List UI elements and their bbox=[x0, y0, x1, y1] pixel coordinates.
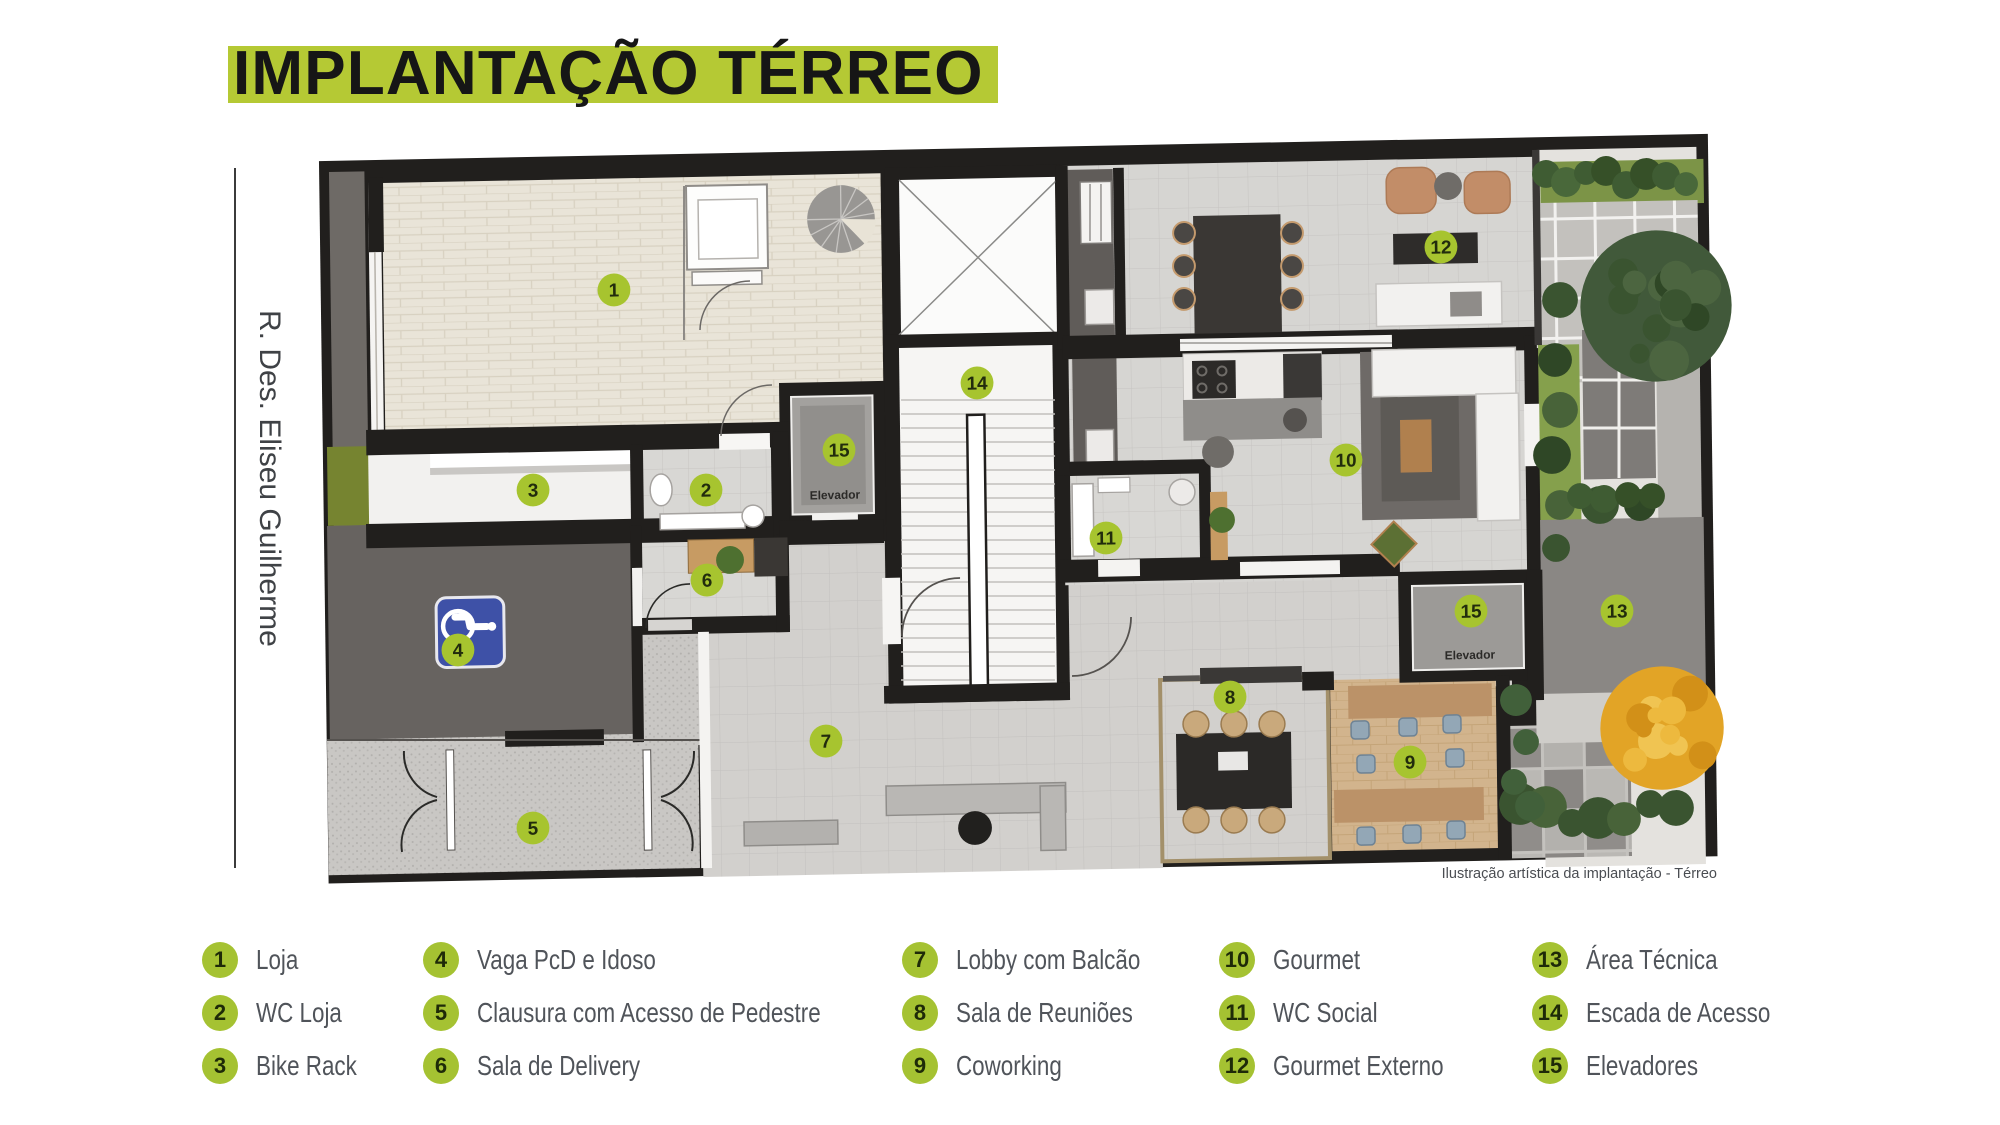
svg-text:3: 3 bbox=[528, 481, 539, 502]
svg-text:1: 1 bbox=[609, 280, 620, 301]
svg-text:14: 14 bbox=[966, 373, 988, 394]
svg-text:Elevador: Elevador bbox=[1445, 648, 1496, 663]
svg-text:10: 10 bbox=[1335, 450, 1356, 471]
svg-text:6: 6 bbox=[702, 571, 713, 592]
svg-text:4: 4 bbox=[453, 641, 464, 662]
svg-text:11: 11 bbox=[1096, 528, 1116, 549]
svg-text:7: 7 bbox=[821, 732, 832, 753]
svg-text:13: 13 bbox=[1606, 601, 1627, 622]
svg-text:15: 15 bbox=[828, 440, 849, 461]
svg-text:15: 15 bbox=[1460, 601, 1481, 622]
svg-text:8: 8 bbox=[1225, 687, 1236, 708]
svg-text:Elevador: Elevador bbox=[810, 488, 861, 503]
svg-text:2: 2 bbox=[701, 481, 712, 502]
svg-text:Ilustração artística da implan: Ilustração artística da implantação - Té… bbox=[1442, 866, 1717, 882]
svg-text:9: 9 bbox=[1405, 753, 1416, 774]
svg-text:5: 5 bbox=[528, 819, 539, 840]
svg-text:12: 12 bbox=[1430, 237, 1451, 258]
